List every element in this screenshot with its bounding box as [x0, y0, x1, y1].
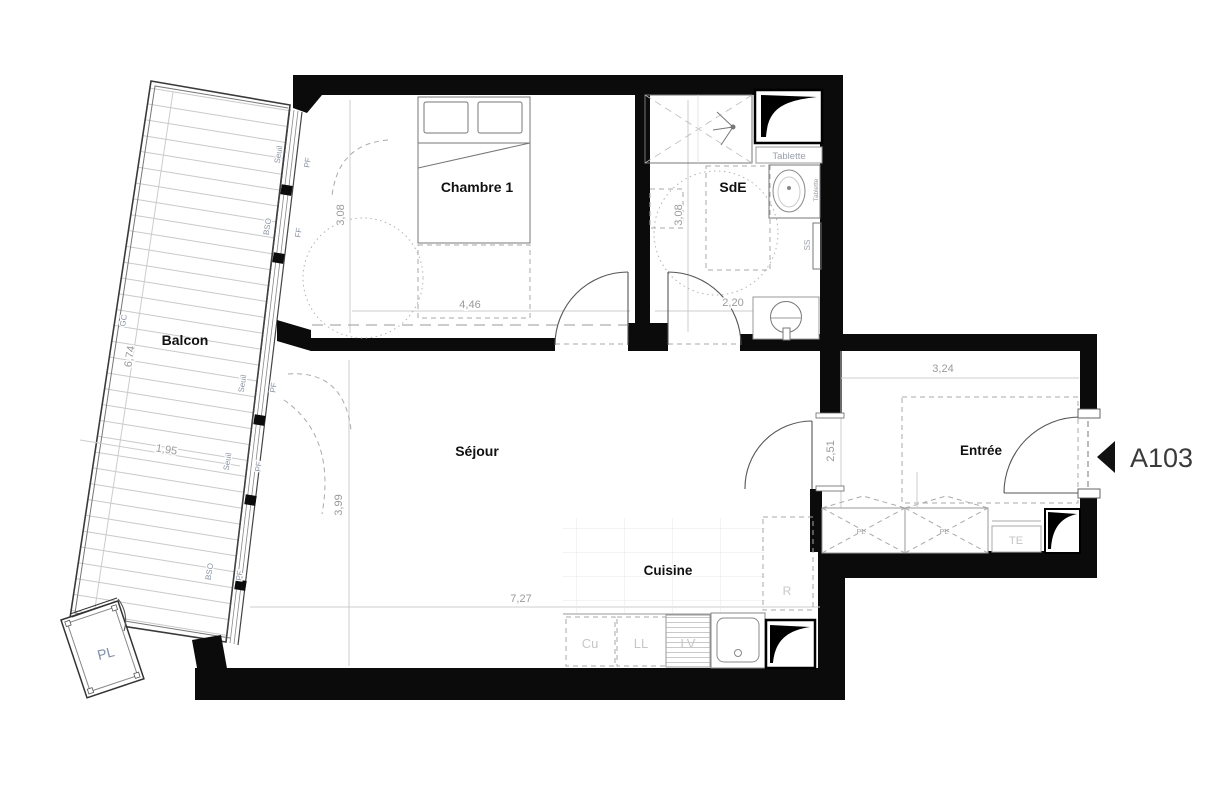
duct-entree	[1045, 509, 1080, 553]
facade-label-pf: PF	[234, 570, 245, 582]
room-label-sejour: Séjour	[455, 443, 499, 459]
label-lv: LV	[681, 636, 696, 651]
window-mullion	[253, 414, 265, 426]
room-label-chambre: Chambre 1	[441, 179, 514, 195]
toilet	[753, 297, 819, 340]
label-fridge: R	[783, 584, 792, 598]
facade-label-ff: FF	[293, 227, 303, 238]
window-mullion	[244, 494, 256, 506]
room-label-entree: Entrée	[960, 443, 1003, 458]
duct-sde	[755, 90, 822, 143]
facade-label-pf: PF	[268, 382, 279, 394]
label-te: TE	[1009, 535, 1023, 547]
label-tablette: Tablette	[772, 151, 805, 162]
unit-marker: A103	[1097, 441, 1193, 473]
duct-kitchen	[766, 620, 815, 668]
label-tablette-side: Tablette	[813, 178, 820, 201]
label-closet-pl: PL	[856, 527, 865, 536]
facade-label-pf: PF	[253, 461, 264, 473]
dim-entree-w: 2,51	[825, 440, 837, 461]
window-mullion	[272, 252, 284, 264]
dim-sejour-w: 3,99	[333, 494, 345, 515]
floor-plan: A103 Chambre 1 SdE Séjour Cuisine Entrée…	[0, 0, 1206, 800]
dim-sde-w: 2,20	[722, 297, 743, 309]
label-cu: Cu	[582, 636, 599, 651]
kitchen-sink	[711, 613, 765, 668]
dim-chambre-l: 4,46	[459, 299, 480, 311]
label-ss: SS	[803, 240, 812, 251]
room-label-balcon: Balcon	[162, 332, 209, 348]
facade-label-pf: PF	[302, 157, 313, 169]
room-label-sde: SdE	[719, 179, 746, 195]
facade-label-gc: GC	[118, 314, 129, 327]
label-ll: LL	[634, 636, 648, 651]
dim-entree-l: 3,24	[932, 363, 953, 375]
dim-sejour-l: 7,27	[510, 593, 531, 605]
window-mullion	[280, 184, 292, 196]
label-closet-pl: PL	[939, 527, 948, 536]
dim-sde-l: 3,08	[673, 204, 685, 225]
unit-label: A103	[1130, 443, 1193, 473]
dim-chambre-w: 3,08	[335, 204, 347, 225]
room-label-cuisine: Cuisine	[644, 563, 693, 578]
